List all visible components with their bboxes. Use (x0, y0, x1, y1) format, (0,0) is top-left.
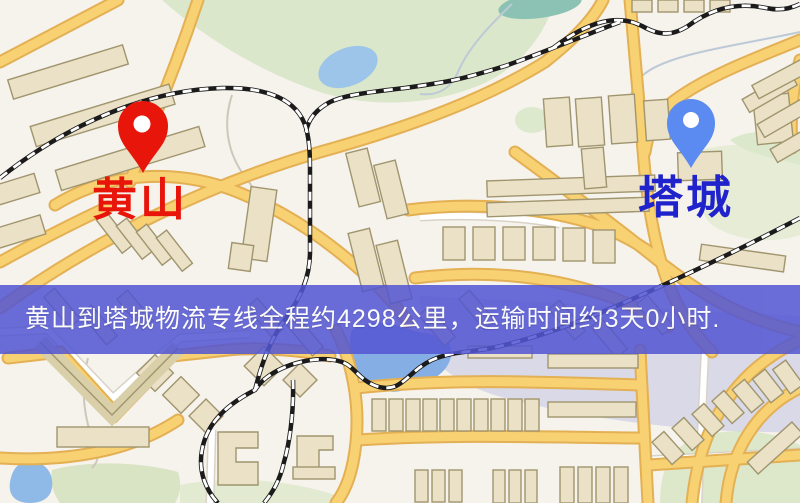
map-canvas[interactable]: 黄山 塔城 黄山到塔城物流专线全程约4298公里，运输时间约3天0小时. (0, 0, 800, 503)
route-info-text: 黄山到塔城物流专线全程约4298公里，运输时间约3天0小时. (0, 307, 720, 332)
dest-label: 塔城 (638, 176, 734, 221)
origin-label: 黄山 (92, 178, 188, 223)
map-art (0, 0, 800, 503)
route-info-banner: 黄山到塔城物流专线全程约4298公里，运输时间约3天0小时. (0, 285, 800, 354)
